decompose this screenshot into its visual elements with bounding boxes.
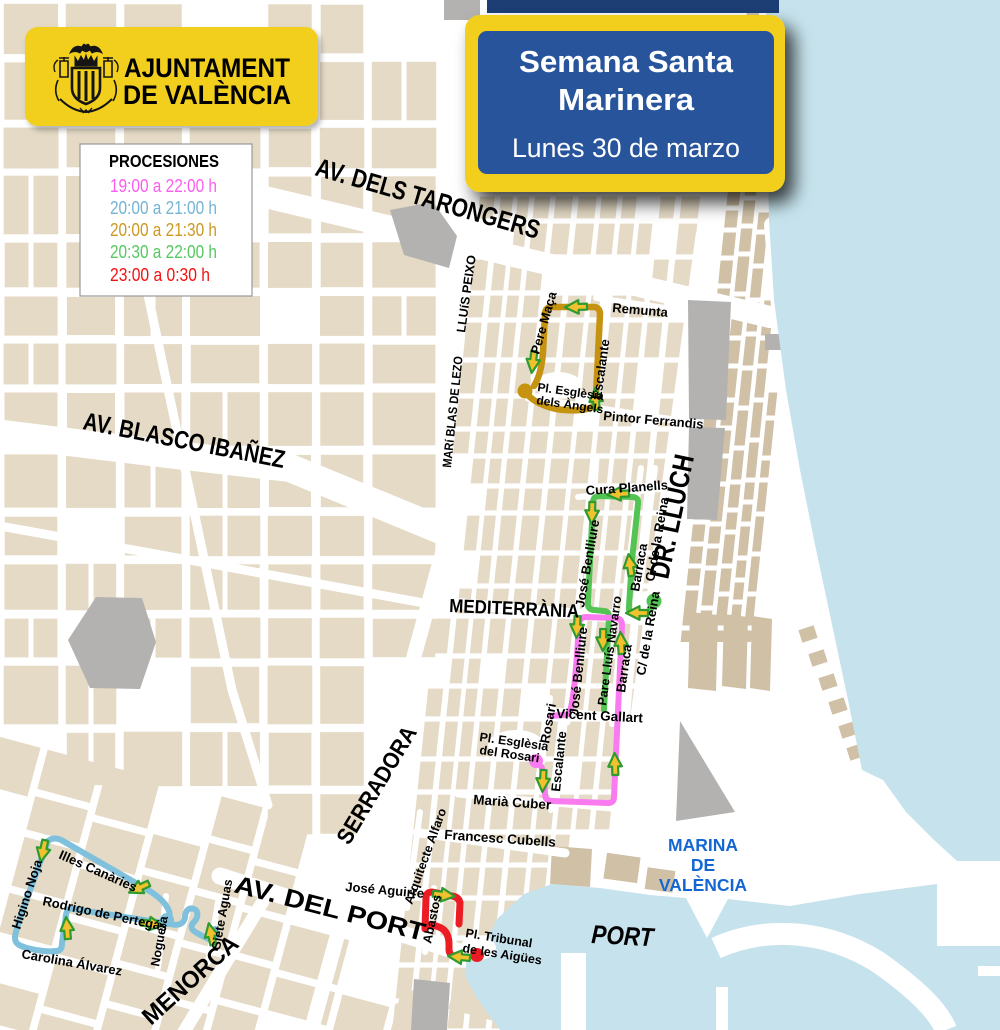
svg-text:VALÈNCIA: VALÈNCIA: [659, 874, 748, 895]
svg-text:PROCESIONES: PROCESIONES: [109, 151, 219, 171]
svg-text:Lunes 30 de marzo: Lunes 30 de marzo: [512, 133, 740, 163]
svg-text:DE VALÈNCIA: DE VALÈNCIA: [123, 79, 291, 110]
svg-text:PORT: PORT: [591, 919, 656, 952]
svg-text:19:00 a 22:00 h: 19:00 a 22:00 h: [110, 176, 217, 196]
svg-text:Semana Santa: Semana Santa: [519, 44, 734, 79]
svg-text:DE: DE: [691, 855, 715, 875]
svg-text:20:30 a 22:00 h: 20:30 a 22:00 h: [110, 242, 217, 262]
svg-text:Marinera: Marinera: [558, 82, 695, 117]
svg-text:MARINA: MARINA: [668, 835, 738, 855]
svg-text:20:00 a 21:00 h: 20:00 a 21:00 h: [110, 198, 217, 218]
svg-text:AJUNTAMENT: AJUNTAMENT: [124, 53, 290, 83]
svg-text:20:00 a 21:30 h: 20:00 a 21:30 h: [110, 220, 217, 240]
svg-text:23:00 a 0:30 h: 23:00 a 0:30 h: [110, 265, 210, 285]
